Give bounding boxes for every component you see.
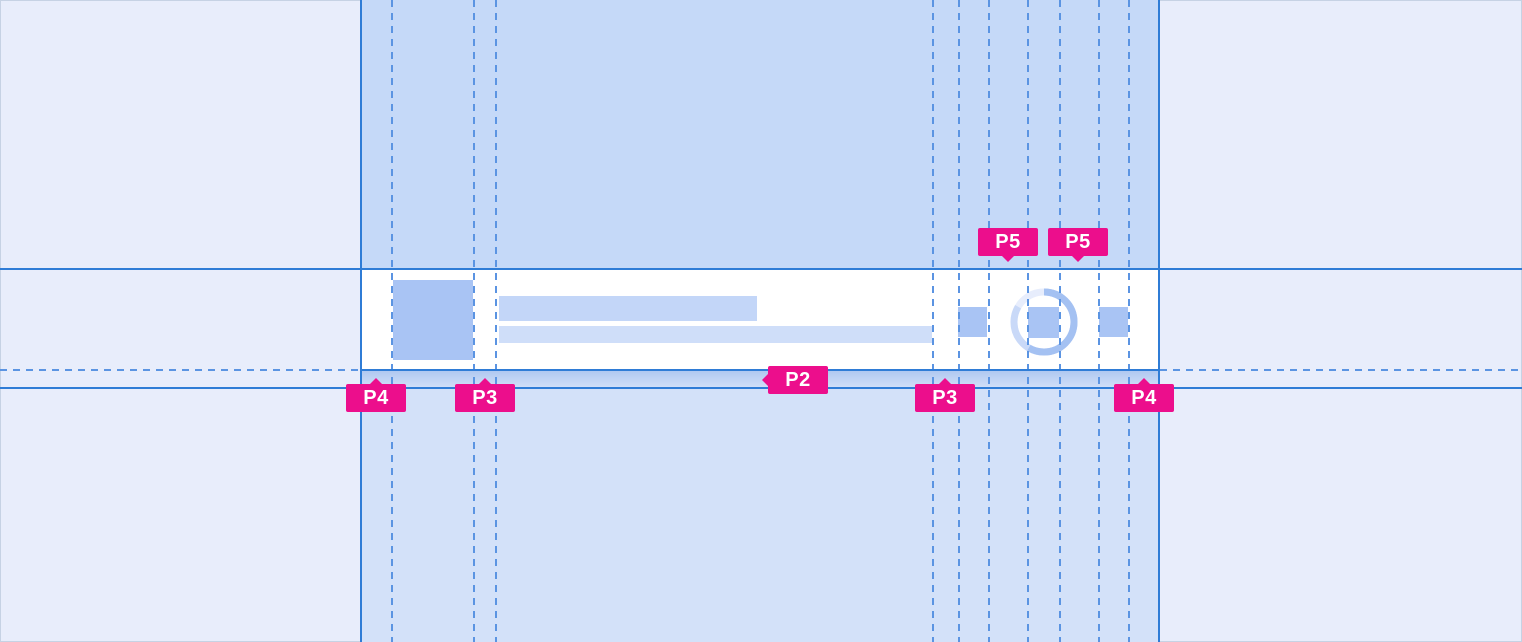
label-notch-down (1071, 255, 1085, 262)
guide-dashed-hline (0, 369, 361, 371)
guide-solid-hline (361, 369, 1159, 371)
guide-dashed-vline (1128, 0, 1130, 642)
spacing-label-text: P2 (785, 369, 810, 391)
label-notch-up (1137, 378, 1151, 385)
avatar-placeholder (393, 280, 473, 360)
guide-dashed-vline (958, 0, 960, 642)
spacing-label-p2: P2 (768, 366, 828, 394)
spacing-label-text: P5 (1065, 231, 1090, 253)
spacing-label-p4-right: P4 (1114, 384, 1174, 412)
label-notch-down (1001, 255, 1015, 262)
guide-dashed-vline (1059, 0, 1061, 642)
label-notch-up (369, 378, 383, 385)
guide-solid-hline (0, 387, 1522, 389)
guide-dashed-vline (988, 0, 990, 642)
layout-column-top (361, 0, 1159, 269)
guide-dashed-vline (473, 0, 475, 642)
label-notch-up (478, 378, 492, 385)
subtitle-line-placeholder (499, 326, 932, 343)
spacing-label-text: P3 (932, 387, 957, 409)
guide-solid-hline (0, 268, 1522, 270)
layout-column-bottom (361, 388, 1159, 642)
spacing-spec-canvas: P5 P5 P2 P4 P3 P3 P4 (0, 0, 1522, 642)
trailing-icon-placeholder (1099, 307, 1128, 337)
guide-solid-vline (1158, 0, 1160, 642)
spacing-label-p4-left: P4 (346, 384, 406, 412)
guide-solid-vline (360, 0, 362, 642)
guide-dashed-vline (391, 0, 393, 642)
guide-dashed-vline (495, 0, 497, 642)
label-notch-left (762, 373, 769, 387)
guide-dashed-hline (1160, 369, 1522, 371)
title-line-placeholder (499, 296, 757, 321)
spacing-label-text: P5 (995, 231, 1020, 253)
label-notch-up (938, 378, 952, 385)
spacing-label-p5-first: P5 (978, 228, 1038, 256)
guide-dashed-vline (1098, 0, 1100, 642)
spacing-label-p3-left: P3 (455, 384, 515, 412)
spacing-label-text: P3 (472, 387, 497, 409)
guide-dashed-vline (1027, 0, 1029, 642)
spacing-label-p3-right: P3 (915, 384, 975, 412)
trailing-icon-placeholder (958, 307, 987, 337)
trailing-icon-placeholder (1028, 307, 1059, 338)
spacing-label-text: P4 (1131, 387, 1156, 409)
spacing-label-text: P4 (363, 387, 388, 409)
guide-dashed-vline (932, 0, 934, 642)
spacing-label-p5-second: P5 (1048, 228, 1108, 256)
